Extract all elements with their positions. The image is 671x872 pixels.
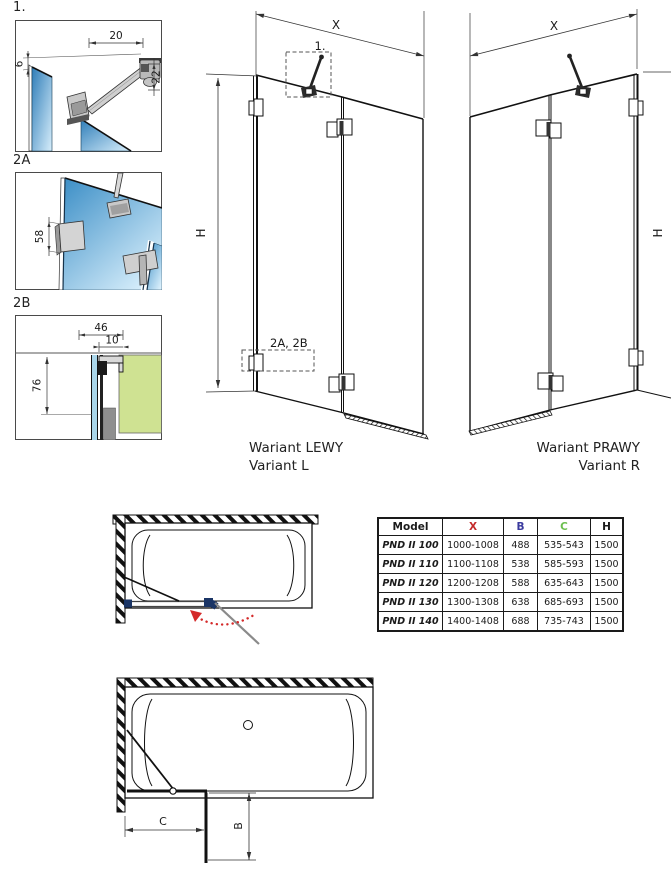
bathtub-outline xyxy=(125,523,312,608)
bathtub-plan-swing-figure xyxy=(105,510,340,650)
h-cell: 1500 xyxy=(591,574,624,593)
bathtub-plan-dimensions-figure: B C xyxy=(105,672,395,872)
x-cell: 1200-1208 xyxy=(443,574,504,593)
model-cell: PND II 120 xyxy=(378,574,443,593)
dim-x-label: X xyxy=(550,19,558,33)
variant-left-caption-en: Variant L xyxy=(249,458,309,474)
dim-46-label: 46 xyxy=(94,322,108,334)
variant-right-caption-en: Variant R xyxy=(578,458,640,474)
swing-arrowhead xyxy=(190,610,202,622)
variant-left-caption-pl: Wariant LEWY xyxy=(249,440,344,456)
variant-right-annotations: X H Wariant PRAWY Variant R xyxy=(470,9,671,474)
b-cell: 688 xyxy=(504,612,538,632)
col-header-x: X xyxy=(443,518,504,536)
h-cell: 1500 xyxy=(591,536,624,555)
plan-dimensions: B C xyxy=(125,793,256,860)
bathtub-outline xyxy=(125,687,373,798)
dim-h-label: H xyxy=(651,228,665,237)
table-row: PND II 130 1300-1308 638 685-693 1500 xyxy=(378,593,623,612)
variant-right-panels xyxy=(469,54,671,435)
x-cell: 1000-1008 xyxy=(443,536,504,555)
detail-2a-figure: 58 xyxy=(15,172,162,290)
ref-detail-1: 1. xyxy=(315,39,326,53)
col-header-c: C xyxy=(538,518,591,536)
wall-profile-marker xyxy=(124,600,132,608)
c-cell: 685-693 xyxy=(538,593,591,612)
swing-arc xyxy=(197,615,254,625)
detail-2a-label: 2A xyxy=(13,153,31,168)
door-hinge-top xyxy=(536,120,561,138)
c-cell: 735-743 xyxy=(538,612,591,632)
model-cell: PND II 110 xyxy=(378,555,443,574)
col-header-model: Model xyxy=(378,518,443,536)
dim-6-label: 6 xyxy=(15,60,26,67)
dim-c-label: C xyxy=(159,815,167,828)
b-cell: 588 xyxy=(504,574,538,593)
h-cell: 1500 xyxy=(591,593,624,612)
table-row: PND II 120 1200-1208 588 635-643 1500 xyxy=(378,574,623,593)
detail-2b-label: 2B xyxy=(13,296,31,311)
support-arm xyxy=(567,54,591,98)
c-cell: 635-643 xyxy=(538,574,591,593)
h-cell: 1500 xyxy=(591,612,624,632)
variant-right-figure: X H Wariant PRAWY Variant R xyxy=(450,5,671,475)
col-header-h: H xyxy=(591,518,624,536)
detail-2b-figure: 46 10 76 xyxy=(15,315,162,440)
ref-details-2a-2b: 2A, 2B xyxy=(270,336,308,350)
dim-22-label: 22 xyxy=(151,70,163,83)
b-cell: 638 xyxy=(504,593,538,612)
table-header-row: Model X B C H xyxy=(378,518,623,536)
door-hinge-bottom xyxy=(329,374,354,392)
detail-1-figure: 20 6 22 xyxy=(15,20,162,152)
b-cell: 488 xyxy=(504,536,538,555)
c-cell: 535-543 xyxy=(538,536,591,555)
dim-58-label: 58 xyxy=(34,230,46,243)
detail-1-label: 1. xyxy=(13,0,26,15)
door-hinge-bottom xyxy=(538,373,563,391)
x-cell: 1300-1308 xyxy=(443,593,504,612)
variant-right-caption-pl: Wariant PRAWY xyxy=(536,440,640,456)
dim-10-label: 10 xyxy=(105,335,118,347)
table-row: PND II 100 1000-1008 488 535-543 1500 xyxy=(378,536,623,555)
model-cell: PND II 140 xyxy=(378,612,443,632)
wall-bracket-bottom xyxy=(249,354,263,371)
dim-b-label: B xyxy=(232,822,245,830)
col-header-b: B xyxy=(504,518,538,536)
b-cell: 538 xyxy=(504,555,538,574)
dim-x-label: X xyxy=(332,18,340,32)
technical-drawing-page: 1. xyxy=(0,0,671,872)
variant-left-panels xyxy=(249,55,428,439)
hinge-pivot xyxy=(170,788,176,794)
door-hinge-top xyxy=(327,119,352,137)
wall-bracket-bottom xyxy=(629,349,643,366)
table-row: PND II 140 1400-1408 688 735-743 1500 xyxy=(378,612,623,632)
drain xyxy=(244,721,253,730)
h-cell: 1500 xyxy=(591,555,624,574)
model-cell: PND II 130 xyxy=(378,593,443,612)
x-cell: 1100-1108 xyxy=(443,555,504,574)
dim-20-label: 20 xyxy=(109,30,122,42)
c-cell: 585-593 xyxy=(538,555,591,574)
table-row: PND II 110 1100-1108 538 585-593 1500 xyxy=(378,555,623,574)
wall-bracket-top xyxy=(629,99,643,116)
model-cell: PND II 100 xyxy=(378,536,443,555)
size-table: Model X B C H PND II 100 1000-1008 488 5… xyxy=(377,517,624,632)
wall-bracket-top xyxy=(249,99,263,116)
variant-left-figure: X H 1. 2A, 2B Wariant LEWY Variant L xyxy=(190,5,440,475)
dim-76-label: 76 xyxy=(32,379,44,393)
x-cell: 1400-1408 xyxy=(443,612,504,632)
dim-h-label: H xyxy=(194,228,208,237)
